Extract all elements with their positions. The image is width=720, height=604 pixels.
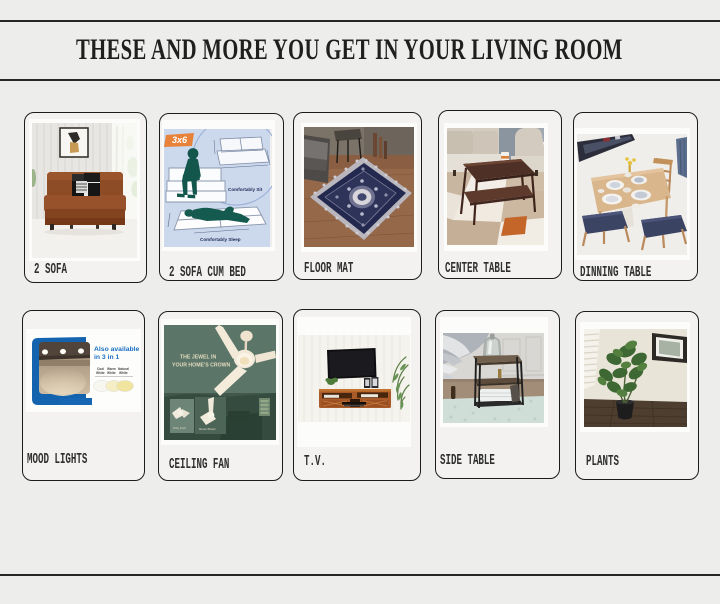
svg-text:YOUR HOME'S CROWN: YOUR HOME'S CROWN [172, 362, 231, 368]
svg-text:Comfortably Sit: Comfortably Sit [228, 187, 263, 192]
svg-text:White: White [107, 371, 116, 375]
svg-text:3x6: 3x6 [172, 135, 188, 145]
svg-text:THE JEWEL IN: THE JEWEL IN [180, 355, 216, 361]
svg-text:Comfortably Sleep: Comfortably Sleep [200, 237, 241, 242]
svg-text:Ruby Pearl: Ruby Pearl [173, 426, 186, 430]
svg-text:Also available: Also available [94, 346, 140, 353]
svg-text:in 3 in 1: in 3 in 1 [94, 354, 120, 361]
svg-text:Master Blaster: Master Blaster [199, 427, 216, 431]
svg-text:White: White [96, 371, 105, 375]
svg-text:White: White [119, 371, 128, 375]
